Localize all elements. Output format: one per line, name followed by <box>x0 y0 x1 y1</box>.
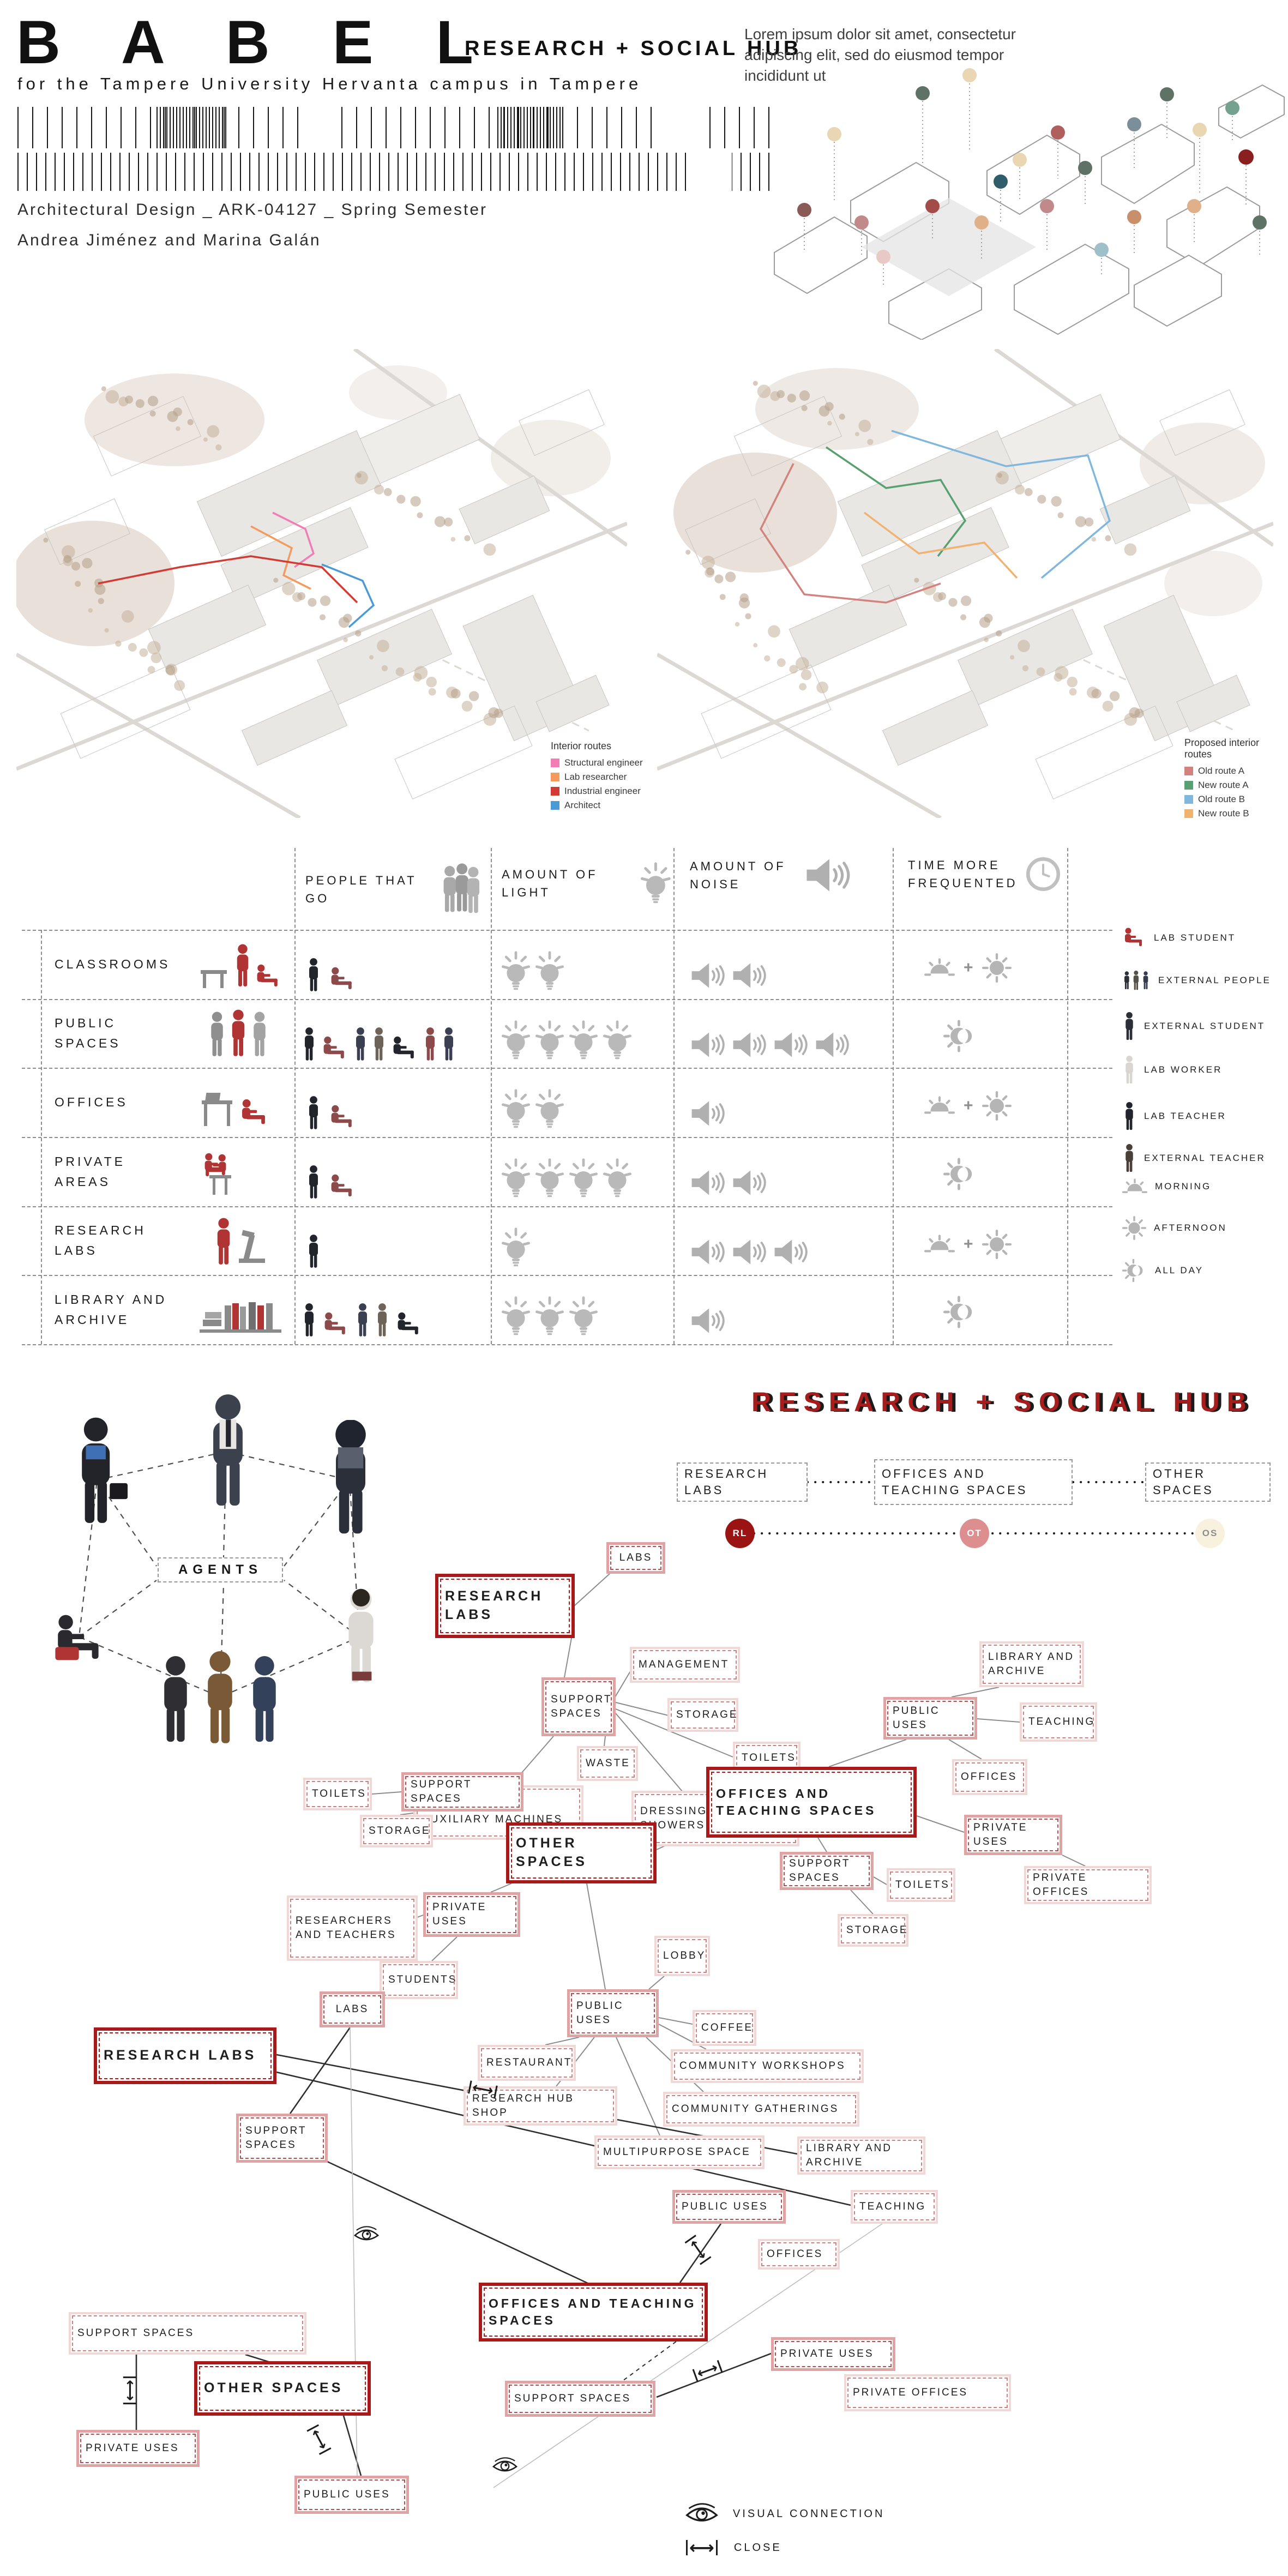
agents-box: AGENTS <box>158 1557 283 1582</box>
people-icons <box>305 1145 358 1200</box>
legend-item: Architect <box>551 800 643 811</box>
agent-businesswoman <box>70 1416 130 1539</box>
proposed-map-legend: Proposed interior routes Old route A New… <box>1184 737 1288 822</box>
node-teaching-relation: TEACHING <box>851 2190 938 2224</box>
noise-icons <box>690 1153 767 1197</box>
node-public-uses-ot: PUBLIC USES <box>883 1697 977 1740</box>
node-support-spaces-os: SUPPORT SPACES <box>401 1772 523 1811</box>
node-private-uses-ot: PRIVATE USES <box>964 1815 1062 1855</box>
eye-icon <box>685 2503 719 2525</box>
research-labs-icon <box>196 1215 289 1266</box>
lab-teacher-icon <box>1122 1102 1136 1131</box>
node-community-workshops: COMMUNITY WORKSHOPS <box>671 2049 864 2083</box>
node-support-spaces-ot: SUPPORT SPACES <box>780 1852 874 1890</box>
node-students: STUDENTS <box>380 1961 458 1999</box>
node-offices-relation: OFFICES <box>758 2239 840 2270</box>
circle-rl: RL <box>725 1519 755 1548</box>
matrix-side-legend: LAB STUDENT EXTERNAL PEOPLE EXTERNAL STU… <box>1122 922 1286 1336</box>
node-researchers-teachers: RESEARCHERS AND TEACHERS <box>287 1895 418 1961</box>
noise-icons <box>690 1291 726 1335</box>
row-label: PRIVATE AREAS <box>55 1137 174 1206</box>
close-icon: ⟷ <box>306 2424 333 2455</box>
overview-box-research-labs: RESEARCH LABS <box>677 1462 808 1502</box>
page-tagline: for the Tampere University Hervanta camp… <box>17 74 642 94</box>
node-offices-ot: OFFICES <box>952 1759 1027 1795</box>
people-icons <box>305 1214 322 1269</box>
node-labs: LABS <box>606 1542 665 1574</box>
node-teaching-ot: TEACHING <box>1020 1702 1097 1742</box>
lab-student-icon <box>1122 927 1146 949</box>
node-library-archive: LIBRARY AND ARCHIVE <box>979 1641 1084 1687</box>
agent-hijab-woman <box>323 1420 378 1538</box>
people-icons <box>301 1283 424 1338</box>
visual-connection-eye-icon <box>492 2457 518 2474</box>
legend-item: Lab researcher <box>551 772 643 783</box>
node-private-uses-os: PRIVATE USES <box>423 1892 520 1937</box>
node-private-uses-relation-ot: PRIVATE USES <box>771 2337 895 2371</box>
column-header-people: PEOPLE THAT GO <box>305 859 485 920</box>
legend-item: Old route B <box>1184 794 1288 805</box>
new-route-b-swatch <box>1184 809 1193 818</box>
node-other-spaces-relation: OTHER SPACES <box>194 2361 371 2416</box>
legend-title: Interior routes <box>551 741 643 752</box>
node-support-spaces-relation-ot: SUPPORT SPACES <box>505 2381 655 2417</box>
old-route-b-swatch <box>1184 795 1193 804</box>
node-restaurant: RESTAURANT <box>478 2045 576 2081</box>
relation-legend-close: ⟷ CLOSE <box>686 2539 782 2556</box>
library-icon <box>196 1287 289 1335</box>
noise-icons <box>690 946 767 990</box>
legend-item: Structural engineer <box>551 757 643 768</box>
node-waste: WASTE <box>577 1746 638 1781</box>
node-storage-ot: STORAGE <box>838 1914 908 1947</box>
circle-os: OS <box>1195 1519 1225 1548</box>
industrial-engineer-swatch <box>551 787 559 796</box>
node-storage-rl: STORAGE <box>667 1698 738 1732</box>
column-header-light: AMOUNT OF LIGHT <box>502 859 671 908</box>
column-header-time: TIME MORE FREQUENTED <box>908 856 1066 892</box>
noise-icons <box>690 1015 850 1059</box>
node-public-uses-relation-ot: PUBLIC USES <box>672 2190 786 2224</box>
agent-external-group <box>154 1640 288 1756</box>
close-icon: ⟷ <box>692 2359 723 2382</box>
node-support-spaces-rl: SUPPORT SPACES <box>541 1677 616 1736</box>
barcode-graphic-2 <box>17 153 775 191</box>
node-community-gatherings: COMMUNITY GATHERINGS <box>663 2092 859 2127</box>
node-management: MANAGEMENT <box>630 1647 740 1683</box>
lab-researcher-swatch <box>551 773 559 781</box>
visual-connection-eye-icon <box>353 2226 380 2243</box>
legend-item: Industrial engineer <box>551 786 643 797</box>
close-icon: ⟷ <box>684 2234 712 2265</box>
lab-worker-icon <box>1122 1055 1136 1085</box>
external-student-icon <box>1122 1012 1136 1041</box>
clock-icon <box>1025 856 1061 892</box>
node-labs-relation: LABS <box>320 1991 385 2027</box>
legend-item: New route B <box>1184 808 1288 819</box>
light-icons <box>502 1217 530 1269</box>
external-people-icon <box>1122 965 1151 996</box>
people-group-icon <box>438 859 485 920</box>
node-research-labs-relation: RESEARCH LABS <box>94 2027 276 2084</box>
noise-icons <box>690 1084 726 1128</box>
circle-ot: OT <box>960 1519 989 1548</box>
node-public-uses-relation-os: PUBLIC USES <box>294 2476 409 2514</box>
node-offices-teaching-relation: OFFICES AND TEACHING SPACES <box>479 2283 708 2342</box>
light-icons <box>502 1010 631 1062</box>
barcode-graphic-1 <box>17 107 775 148</box>
agent-lab-worker <box>338 1580 384 1693</box>
overview-box-other-spaces: OTHER SPACES <box>1145 1462 1271 1502</box>
node-toilets-os: TOILETS <box>303 1778 372 1810</box>
light-icons <box>502 941 564 992</box>
legend-title: Proposed interior routes <box>1184 737 1288 760</box>
node-private-offices-relation: PRIVATE OFFICES <box>844 2374 1011 2411</box>
space-comparison-matrix: PEOPLE THAT GO AMOUNT OF LIGHT AMOUNT OF… <box>22 842 1112 1344</box>
time-icons: + <box>924 1084 1012 1128</box>
node-public-uses-os: PUBLIC USES <box>567 1989 659 2037</box>
close-icon: ⟷ <box>123 2376 137 2404</box>
node-private-uses-relation-os: PRIVATE USES <box>76 2430 200 2467</box>
row-label: RESEARCH LABS <box>55 1206 174 1275</box>
overview-box-offices-teaching: OFFICES AND TEACHING SPACES <box>874 1459 1073 1505</box>
old-route-a-swatch <box>1184 767 1193 775</box>
offices-icon <box>196 1079 289 1129</box>
all-day-icon <box>1122 1259 1147 1283</box>
people-icons <box>305 938 358 992</box>
node-toilets-ot: TOILETS <box>887 1868 955 1902</box>
node-support-spaces-relation-os: SUPPORT SPACES <box>69 2312 306 2355</box>
agent-sitting-student <box>34 1613 127 1665</box>
relation-legend-visual: VISUAL CONNECTION <box>685 2503 884 2525</box>
node-other-spaces: OTHER SPACES <box>506 1822 657 1883</box>
speaker-icon <box>804 856 851 894</box>
site-map-existing <box>16 349 627 818</box>
program-title: RESEARCH + SOCIAL HUB <box>751 1386 1254 1418</box>
site-map-proposed <box>657 349 1273 818</box>
node-coffee: COFFEE <box>693 2010 756 2046</box>
people-icons <box>301 1007 457 1062</box>
time-icons: + <box>924 946 1012 990</box>
time-icons: + <box>924 1223 1012 1266</box>
existing-map-legend: Interior routes Structural engineer Lab … <box>551 741 643 814</box>
legend-item: New route A <box>1184 780 1288 791</box>
node-research-labs: RESEARCH LABS <box>435 1574 575 1638</box>
isometric-campus-drawing <box>753 43 1288 340</box>
classrooms-icon <box>196 942 289 991</box>
node-lobby: LOBBY <box>654 1936 710 1976</box>
architect-swatch <box>551 801 559 810</box>
external-teacher-icon <box>1122 1143 1136 1173</box>
row-label: PUBLIC SPACES <box>55 999 174 1068</box>
row-label: OFFICES <box>55 1068 196 1137</box>
column-header-noise: AMOUNT OF NOISE <box>690 856 886 894</box>
node-offices-teaching: OFFICES AND TEACHING SPACES <box>706 1767 917 1838</box>
authors: Andrea Jiménez and Marina Galán <box>17 231 321 250</box>
light-icons <box>502 1079 564 1130</box>
node-library-archive-relation: LIBRARY AND ARCHIVE <box>797 2136 925 2175</box>
people-icons <box>305 1076 358 1130</box>
time-icons <box>943 1151 978 1197</box>
page-title: B A B E L <box>16 12 496 73</box>
private-areas-icon <box>196 1147 289 1197</box>
public-spaces-icon <box>196 1009 289 1059</box>
noise-icons <box>690 1223 809 1266</box>
light-icons <box>502 1286 598 1338</box>
close-icon: ⟷ <box>686 2539 718 2556</box>
structural-engineer-swatch <box>551 759 559 767</box>
legend-item: Old route A <box>1184 766 1288 777</box>
node-support-spaces-relation-rl: SUPPORT SPACES <box>236 2114 328 2163</box>
new-route-a-swatch <box>1184 781 1193 790</box>
node-private-offices: PRIVATE OFFICES <box>1024 1866 1152 1904</box>
sunrise-icon <box>1122 1178 1147 1195</box>
node-multipurpose-space: MULTIPURPOSE SPACE <box>594 2135 765 2169</box>
course-info: Architectural Design _ ARK-04127 _ Sprin… <box>17 201 487 219</box>
time-icons <box>943 1289 978 1335</box>
node-storage-os: STORAGE <box>360 1815 433 1847</box>
time-icons <box>943 1013 978 1059</box>
row-label: LIBRARY AND ARCHIVE <box>55 1275 196 1344</box>
light-icons <box>502 1148 631 1200</box>
sun-icon <box>1122 1216 1146 1240</box>
lightbulb-icon <box>641 859 671 908</box>
row-label: CLASSROOMS <box>55 930 196 999</box>
agent-businessman <box>201 1384 255 1518</box>
